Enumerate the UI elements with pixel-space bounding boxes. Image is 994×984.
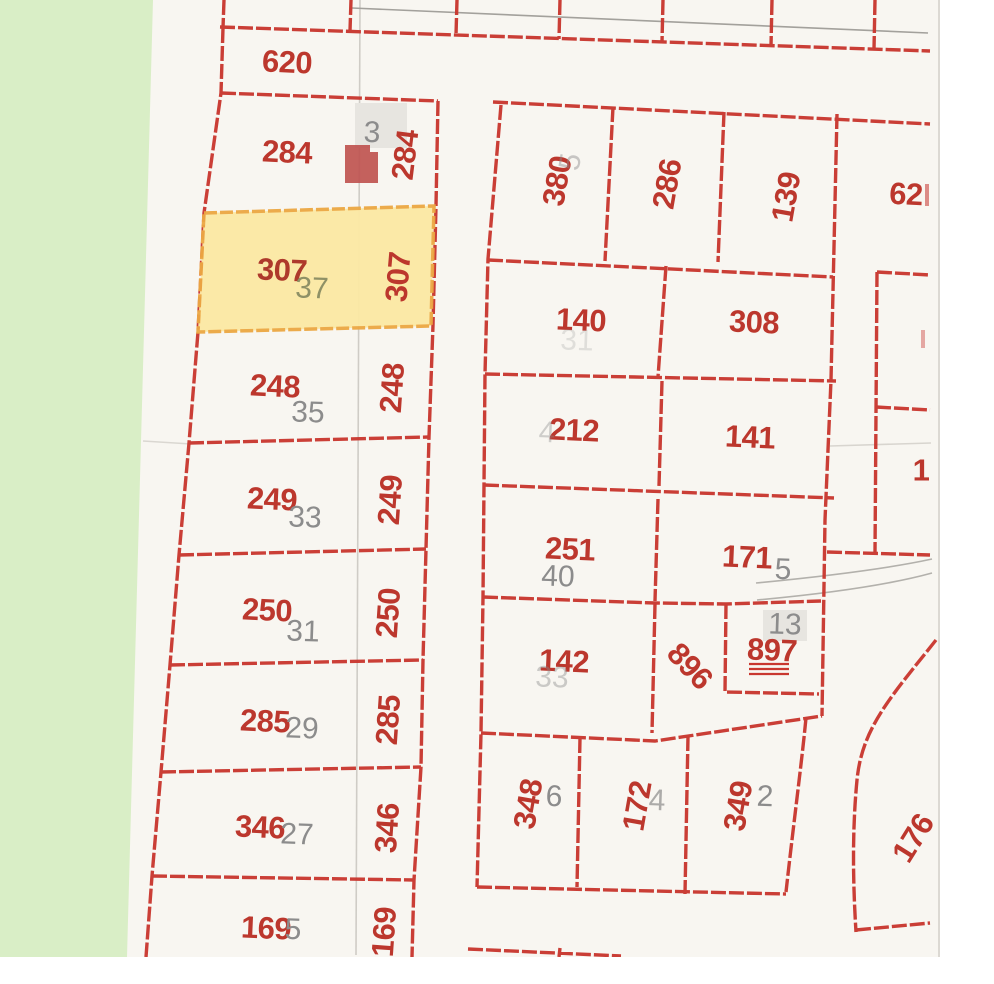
parcel-label-349: 349 [718,779,757,834]
parcel-label-250: 250 [241,593,292,626]
house-number-35: 35 [291,397,325,428]
house-number-37: 37 [295,273,329,304]
parcel-label-171: 171 [721,540,772,573]
parcel-label-284-rotated: 284 [387,128,424,181]
parcel-label-249-rotated: 249 [373,474,407,526]
parcel-label-139: 139 [766,170,805,225]
parcel-label-346: 346 [234,810,285,843]
parcel-label-141: 141 [724,420,775,453]
parcel-label-248-rotated: 248 [375,362,409,414]
parcel-label-250-rotated: 250 [371,587,405,639]
house-number-6: 6 [545,782,563,813]
map-canvas [0,0,938,957]
parcel-label-212: 212 [548,413,599,446]
parcel-label-620: 620 [261,45,312,78]
house-number-2: 2 [756,782,774,813]
map-edge-divider [938,0,940,957]
parcel-label-308: 308 [728,305,779,338]
parcel-label-169-rotated: 169 [367,906,401,957]
parcel-label-307-rotated: 307 [380,251,415,303]
house-number-31: 31 [286,616,320,647]
house-number-ghost-212: 4 [538,418,556,449]
house-number-27: 27 [280,819,314,850]
house-number-ghost-140: 31 [560,325,594,356]
house-number-40: 40 [541,561,575,592]
house-number-5: 5 [774,555,792,586]
house-number-4: 4 [648,786,666,817]
house-number-33: 33 [288,502,322,533]
parcel-label-62: 62 [889,178,924,210]
house-number-ghost-142: 33 [535,662,569,693]
cadastral-map[interactable]: 620 284 284 307 307 248 248 249 249 250 … [0,0,938,957]
parcel-label-286: 286 [647,157,686,212]
parcel-label-284: 284 [261,135,312,168]
parcel-label-285: 285 [239,704,290,737]
house-number-25-partial: 5 [284,915,302,946]
parcel-label-346-rotated: 346 [370,802,404,854]
house-number-3-partial: 3 [363,118,381,149]
house-number-29: 29 [285,713,319,744]
parcel-label-285-rotated: 285 [371,694,405,746]
greenspace-strip [0,0,153,957]
partial-digit [921,330,925,348]
partial-digit [925,184,929,206]
parcel-label-partial-1: 1 [913,455,930,486]
parcel-label-348: 348 [508,777,547,832]
screen: 620 284 284 307 307 248 248 249 249 250 … [0,0,994,984]
house-number-13: 13 [768,609,802,640]
